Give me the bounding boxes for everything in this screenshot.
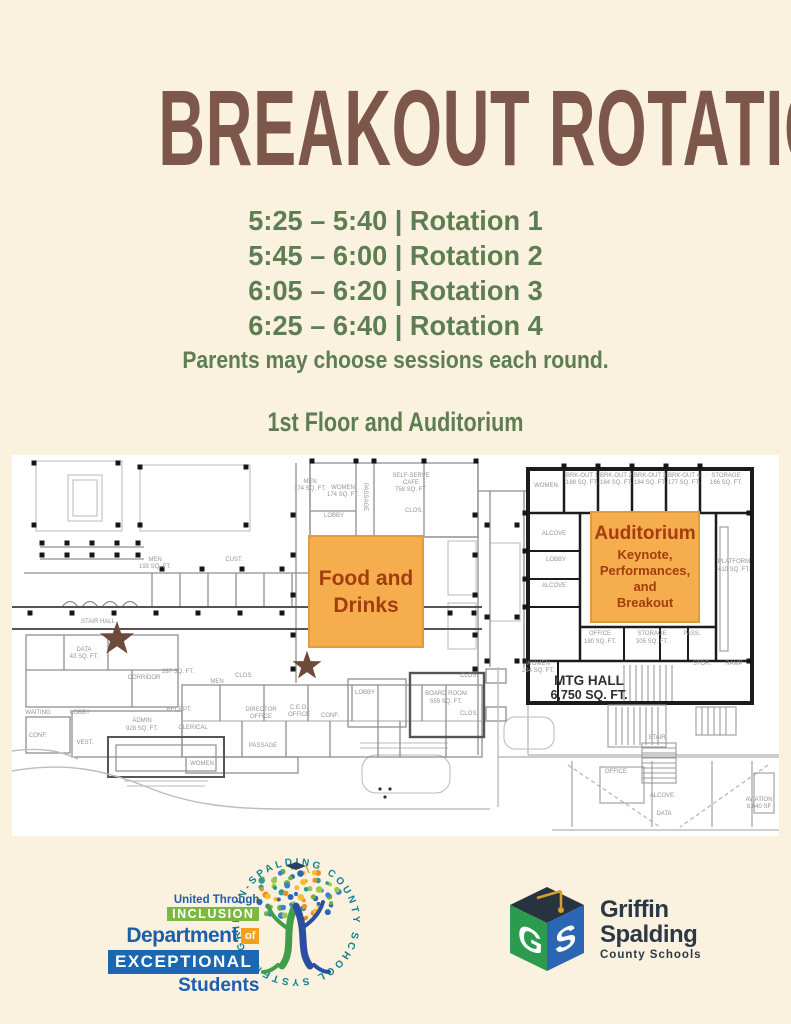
svg-text:758 SQ. FT.: 758 SQ. FT. [395,487,427,493]
svg-text:WOMEN: WOMEN [331,485,355,491]
district-name-2: Spalding [600,922,702,947]
district-name-1: Griffin [600,897,702,922]
svg-text:ADMIN: ADMIN [132,718,151,724]
floor-plan-map: MEN193 SQ. FT.CUST.STAIR HALLDATA43 SQ. … [12,455,779,836]
svg-text:184 SQ. FT.: 184 SQ. FT. [600,480,632,486]
svg-text:WOMEN: WOMEN [190,761,214,767]
svg-text:928 SQ. FT.: 928 SQ. FT. [126,726,158,732]
svg-text:STORAGE: STORAGE [637,631,666,637]
svg-text:ALCOVE: ALCOVE [650,793,674,799]
svg-text:LOBBY: LOBBY [324,513,344,519]
svg-text:188 SQ. FT.: 188 SQ. FT. [566,480,598,486]
svg-text:180 SQ. FT.: 180 SQ. FT. [584,639,616,645]
department-row: Department of [126,924,259,948]
auditorium-line-1: Keynote, [618,547,673,563]
rotation-4: 6:25 – 6:40 | Rotation 4 [12,308,779,343]
svg-text:RECEPT.: RECEPT. [166,707,192,713]
svg-text:CORRIDOR: CORRIDOR [128,675,161,681]
svg-text:ALCOVE: ALCOVE [542,583,566,589]
svg-text:559 SQ. FT.: 559 SQ. FT. [430,699,462,705]
svg-text:OFFICE: OFFICE [288,712,310,718]
auditorium-title: Auditorium [594,522,695,545]
svg-text:PASSAGE: PASSAGE [362,483,368,511]
svg-text:RAMP: RAMP [725,661,742,667]
svg-text:PLATFORM: PLATFORM [718,559,750,565]
map-heading: 1st Floor and Auditorium [79,407,712,438]
page-title: BREAKOUT ROTATIONS [158,74,633,182]
svg-text:STAIR: STAIR [648,735,666,741]
flyer-page: BREAKOUT ROTATIONS 5:25 – 5:40 | Rotatio… [0,0,791,1024]
svg-text:CLOS.: CLOS. [235,673,253,679]
svg-text:STORAGE: STORAGE [711,473,740,479]
gs-cube-icon: G S [505,884,589,974]
svg-text:MEN: MEN [148,557,161,563]
svg-text:BRK-OUT 2: BRK-OUT 2 [600,473,633,479]
students-label: Students [178,975,259,997]
tree-trunk [263,902,329,972]
district-name-3: County Schools [600,949,702,961]
mtg-hall-label: MTG HALL 6,750 SQ. FT. [534,673,644,703]
auditorium-line-2: Performances, [600,563,690,579]
svg-text:PASS.: PASS. [683,631,701,637]
auditorium-highlight: Auditorium Keynote, Performances, and Br… [590,511,700,623]
svg-text:43 SQ. FT.: 43 SQ. FT. [70,654,99,660]
svg-text:STAIR HALL: STAIR HALL [81,619,116,625]
svg-text:DATA: DATA [656,811,671,817]
svg-text:287 SQ. FT.: 287 SQ. FT. [162,669,194,675]
rotation-schedule: 5:25 – 5:40 | Rotation 1 5:45 – 6:00 | R… [0,203,791,378]
svg-text:WOMEN: WOMEN [534,483,558,489]
department-label: Department [126,924,238,948]
svg-text:WAITING: WAITING [25,710,51,716]
svg-text:193 SQ. FT.: 193 SQ. FT. [139,564,171,570]
svg-text:MEN: MEN [303,479,316,485]
svg-text:BOARD ROOM: BOARD ROOM [425,691,467,697]
svg-text:LOBBY: LOBBY [546,557,566,563]
svg-text:DIRECTOR: DIRECTOR [245,707,277,713]
mtg-hall-name: MTG HALL [534,673,644,688]
svg-text:VEST.: VEST. [77,740,94,746]
svg-text:LOBBY: LOBBY [355,690,375,696]
svg-text:CONF.: CONF. [29,733,47,739]
svg-text:LOBBY: LOBBY [70,710,90,716]
gscs-text-block: Griffin Spalding County Schools [600,897,702,961]
svg-text:MEN: MEN [210,679,223,685]
food-line-2: Drinks [333,592,398,619]
svg-text:305 SQ. FT.: 305 SQ. FT. [636,639,668,645]
svg-text:184 SQ. FT.: 184 SQ. FT. [634,480,666,486]
svg-text:ALCOVE: ALCOVE [542,531,566,537]
exceptional-students-logo: United Through INCLUSION Department of E… [108,848,376,998]
inclusion-badge: INCLUSION [167,907,259,921]
svg-text:BRK-OUT 4: BRK-OUT 4 [668,473,701,479]
mtg-hall-area: 6,750 SQ. FT. [534,688,644,703]
svg-text:CLOS.: CLOS. [405,508,423,514]
star-marker-2 [292,651,321,679]
svg-text:177 SQ. FT.: 177 SQ. FT. [668,480,700,486]
of-badge: of [241,928,259,944]
svg-text:CLOS.: CLOS. [460,673,478,679]
auditorium-line-4: Breakout [617,595,673,611]
rotation-1: 5:25 – 5:40 | Rotation 1 [12,203,779,238]
svg-text:CONF.: CONF. [321,713,339,719]
svg-text:CAFE: CAFE [403,480,419,486]
svg-text:AVIATION: AVIATION [745,797,772,803]
svg-text:166 SQ. FT.: 166 SQ. FT. [710,480,742,486]
united-through-label: United Through [174,894,260,906]
svg-text:PASSAGE: PASSAGE [249,743,277,749]
svg-text:CLERICAL: CLERICAL [178,725,208,731]
svg-text:BRK-OUT 1: BRK-OUT 1 [566,473,599,479]
svg-text:STOR.: STOR. [693,661,712,667]
svg-text:OFFICE: OFFICE [605,769,627,775]
exceptional-badge: EXCEPTIONAL [108,950,259,974]
gscs-logo: G S Griffin Spalding County Schools [505,884,702,974]
svg-text:174 SQ. FT.: 174 SQ. FT. [294,486,326,492]
svg-text:8,640 SF: 8,640 SF [747,804,772,810]
svg-text:WOMEN: WOMEN [526,661,550,667]
svg-text:C.E.O.: C.E.O. [290,705,308,711]
svg-text:OFFICE: OFFICE [589,631,611,637]
svg-text:DATA: DATA [76,647,91,653]
svg-text:CUST.: CUST. [225,557,243,563]
svg-text:SELF-SERVE: SELF-SERVE [392,473,429,479]
svg-text:174 SQ. FT.: 174 SQ. FT. [327,492,359,498]
inclusion-text-block: United Through INCLUSION Department of E… [108,894,259,997]
food-drinks-highlight: Food and Drinks [308,535,424,648]
schedule-note: Parents may choose sessions each round. [55,343,735,378]
svg-text:BRK-OUT 3: BRK-OUT 3 [634,473,667,479]
auditorium-line-3: and [633,579,656,595]
star-marker-1 [100,621,134,654]
food-line-1: Food and [319,565,413,592]
svg-text:410 SQ. FT.: 410 SQ. FT. [718,567,750,573]
rotation-3: 6:05 – 6:20 | Rotation 3 [12,273,779,308]
svg-text:OFFICE: OFFICE [250,714,272,720]
svg-text:CLOS.: CLOS. [460,711,478,717]
rotation-2: 5:45 – 6:00 | Rotation 2 [12,238,779,273]
